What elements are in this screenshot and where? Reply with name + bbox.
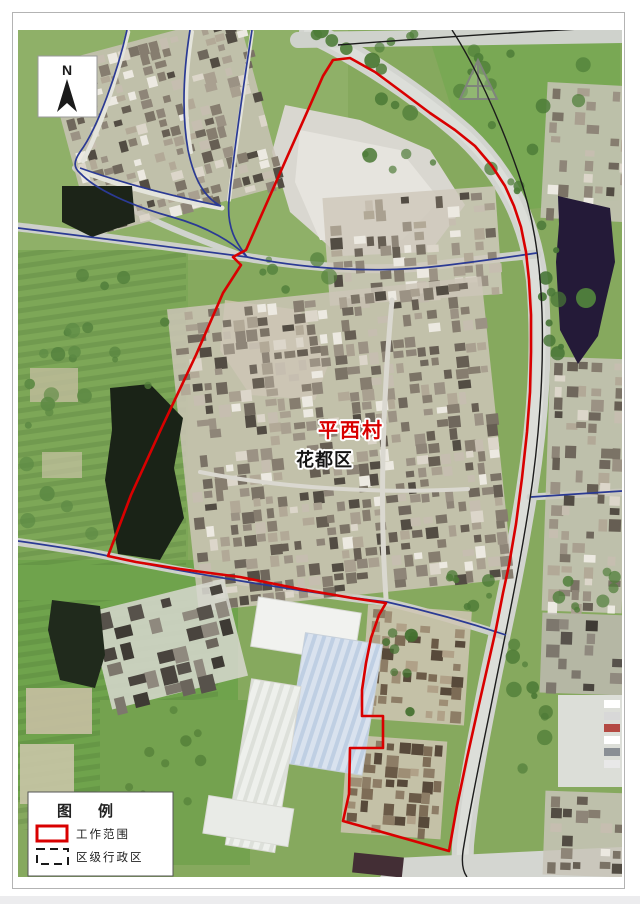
building-roof bbox=[577, 797, 588, 805]
building-roof bbox=[583, 603, 593, 611]
building-roof bbox=[559, 619, 569, 629]
building-roof bbox=[420, 626, 430, 633]
building-roof bbox=[440, 454, 451, 465]
tree-canopy bbox=[24, 379, 35, 390]
building-roof bbox=[302, 396, 314, 408]
building-roof bbox=[547, 862, 556, 874]
building-roof bbox=[458, 501, 466, 511]
building-roof bbox=[310, 346, 321, 354]
building-roof bbox=[547, 565, 560, 575]
building-roof bbox=[354, 248, 363, 257]
building-roof bbox=[460, 306, 469, 314]
building-roof bbox=[206, 526, 215, 537]
building-roof bbox=[482, 487, 494, 496]
building-roof bbox=[395, 635, 406, 646]
building-roof bbox=[393, 568, 407, 581]
building-roof bbox=[265, 399, 277, 407]
building-roof bbox=[268, 412, 279, 424]
building-roof bbox=[297, 578, 305, 589]
tree-canopy bbox=[39, 349, 49, 359]
building-roof bbox=[380, 684, 388, 695]
building-roof bbox=[612, 659, 622, 668]
building-roof bbox=[362, 510, 371, 522]
tree-canopy bbox=[180, 735, 191, 746]
building-roof bbox=[305, 310, 319, 322]
building-roof bbox=[294, 313, 306, 323]
building-roof bbox=[301, 384, 311, 392]
building-roof bbox=[353, 548, 362, 561]
building-roof bbox=[333, 332, 343, 345]
building-roof bbox=[380, 246, 391, 256]
building-roof bbox=[491, 287, 499, 295]
building-roof bbox=[489, 449, 499, 458]
building-roof bbox=[351, 294, 361, 304]
building-roof bbox=[447, 404, 460, 414]
building-roof bbox=[421, 493, 430, 502]
building-roof bbox=[375, 199, 383, 212]
building-roof bbox=[612, 864, 622, 874]
building-roof bbox=[448, 525, 456, 537]
building-roof bbox=[495, 497, 503, 506]
building-roof bbox=[330, 226, 342, 237]
building-roof bbox=[229, 391, 242, 402]
building-roof bbox=[370, 461, 381, 470]
building-roof bbox=[362, 777, 371, 790]
building-roof bbox=[344, 330, 356, 340]
building-roof bbox=[410, 494, 421, 503]
building-roof bbox=[231, 512, 241, 521]
building-roof bbox=[583, 591, 591, 601]
building-roof bbox=[369, 473, 379, 486]
building-roof bbox=[463, 320, 474, 331]
building-roof bbox=[437, 711, 445, 722]
tree-canopy bbox=[546, 319, 553, 326]
building-roof bbox=[386, 779, 395, 787]
building-roof bbox=[387, 743, 395, 750]
building-roof bbox=[437, 539, 447, 548]
building-roof bbox=[395, 816, 406, 825]
building-roof bbox=[476, 558, 486, 570]
building-roof bbox=[439, 699, 448, 706]
building-roof bbox=[578, 386, 586, 397]
building-roof bbox=[456, 356, 470, 369]
building-roof bbox=[382, 815, 395, 825]
building-roof bbox=[268, 532, 278, 542]
building-roof bbox=[448, 283, 460, 292]
building-roof bbox=[414, 313, 422, 320]
building-roof bbox=[262, 363, 274, 375]
building-roof bbox=[427, 310, 438, 319]
tree-canopy bbox=[388, 628, 398, 638]
building-roof bbox=[549, 122, 557, 133]
building-roof bbox=[320, 345, 328, 356]
tree-canopy bbox=[117, 271, 130, 284]
building-roof bbox=[555, 387, 562, 397]
building-roof bbox=[571, 670, 580, 679]
building-roof bbox=[587, 436, 595, 445]
tree-canopy bbox=[402, 105, 418, 121]
building-roof bbox=[561, 566, 572, 573]
page-bottom-strip bbox=[0, 896, 640, 904]
building-roof bbox=[386, 755, 399, 768]
building-roof bbox=[388, 411, 398, 423]
building-roof bbox=[550, 482, 560, 494]
building-roof bbox=[365, 547, 377, 556]
north-arrow: N bbox=[38, 56, 97, 117]
building-roof bbox=[376, 210, 387, 221]
tree-canopy bbox=[325, 34, 338, 47]
building-roof bbox=[316, 538, 325, 546]
tree-canopy bbox=[391, 101, 400, 110]
tree-canopy bbox=[100, 281, 109, 290]
building-roof bbox=[341, 320, 350, 332]
building-roof bbox=[551, 136, 561, 143]
tree-canopy bbox=[482, 574, 495, 587]
building-roof bbox=[321, 357, 331, 366]
building-roof bbox=[565, 446, 576, 459]
building-roof bbox=[205, 503, 217, 510]
building-roof bbox=[490, 473, 502, 481]
building-roof bbox=[411, 743, 424, 755]
building-roof bbox=[347, 813, 358, 822]
tree-canopy bbox=[82, 322, 93, 333]
building-roof bbox=[601, 448, 614, 458]
building-roof bbox=[394, 270, 405, 282]
building-roof bbox=[607, 605, 615, 613]
building-roof bbox=[355, 261, 365, 274]
building-roof bbox=[368, 329, 378, 337]
village-name-label: 平西村 bbox=[318, 419, 384, 442]
building-roof bbox=[427, 685, 438, 693]
building-roof bbox=[464, 561, 473, 571]
building-roof bbox=[431, 650, 444, 661]
building-roof bbox=[391, 696, 403, 703]
building-roof bbox=[359, 355, 368, 365]
building-roof bbox=[586, 125, 599, 134]
tree-canopy bbox=[464, 603, 471, 610]
building-roof bbox=[309, 563, 321, 576]
building-roof bbox=[274, 352, 282, 359]
building-roof bbox=[404, 554, 414, 567]
building-roof bbox=[233, 537, 242, 547]
building-roof bbox=[567, 362, 578, 372]
building-roof bbox=[448, 415, 461, 428]
building-roof bbox=[610, 508, 620, 515]
building-roof bbox=[562, 506, 570, 515]
building-roof bbox=[459, 392, 467, 405]
building-roof bbox=[240, 389, 252, 402]
building-roof bbox=[203, 479, 213, 489]
building-roof bbox=[391, 555, 401, 566]
building-roof bbox=[289, 398, 301, 410]
building-roof bbox=[554, 363, 563, 376]
building-roof bbox=[271, 458, 284, 471]
tree-canopy bbox=[321, 269, 337, 285]
building-roof bbox=[270, 436, 280, 446]
building-roof bbox=[429, 268, 438, 281]
building-roof bbox=[418, 468, 427, 478]
building-roof bbox=[293, 432, 306, 441]
building-roof bbox=[204, 490, 213, 498]
satellite-map-image: 平西村 花都区 N 图例 工作范围 区级行政区 bbox=[18, 30, 622, 877]
building-roof bbox=[451, 677, 463, 688]
tree-canopy bbox=[563, 576, 574, 587]
building-roof bbox=[550, 823, 562, 832]
building-roof bbox=[194, 517, 205, 530]
building-roof bbox=[435, 514, 447, 524]
building-roof bbox=[322, 576, 334, 587]
building-roof bbox=[374, 753, 382, 765]
building-roof bbox=[285, 591, 294, 598]
building-roof bbox=[233, 320, 245, 333]
building-roof bbox=[280, 531, 290, 541]
building-roof bbox=[279, 506, 288, 517]
building-roof bbox=[470, 510, 483, 523]
building-roof bbox=[426, 431, 435, 441]
building-roof bbox=[267, 508, 275, 518]
building-roof bbox=[252, 378, 265, 389]
building-roof bbox=[589, 412, 601, 421]
building-roof bbox=[431, 466, 442, 475]
building-roof bbox=[260, 569, 270, 581]
tree-canopy bbox=[109, 347, 120, 358]
tree-canopy bbox=[375, 92, 388, 105]
building-roof bbox=[396, 623, 407, 631]
building-roof bbox=[555, 411, 563, 418]
building-roof bbox=[320, 334, 328, 344]
building-roof bbox=[437, 419, 449, 427]
tree-canopy bbox=[390, 668, 398, 676]
building-roof bbox=[416, 443, 428, 454]
building-roof bbox=[215, 368, 223, 375]
building-roof bbox=[414, 552, 423, 559]
building-roof bbox=[312, 382, 324, 395]
building-roof bbox=[245, 415, 257, 428]
building-roof bbox=[339, 524, 350, 534]
building-roof bbox=[406, 349, 417, 357]
building-roof bbox=[358, 463, 369, 476]
building-roof bbox=[573, 862, 581, 869]
building-roof bbox=[422, 757, 431, 767]
building-roof bbox=[392, 247, 400, 259]
building-roof bbox=[409, 372, 422, 382]
building-roof bbox=[614, 364, 622, 371]
building-roof bbox=[412, 530, 423, 538]
building-roof bbox=[423, 288, 434, 301]
building-roof bbox=[246, 329, 258, 342]
building-roof bbox=[476, 264, 484, 277]
building-roof bbox=[348, 801, 356, 809]
building-roof bbox=[400, 530, 410, 540]
tree-canopy bbox=[144, 382, 151, 389]
building-roof bbox=[488, 556, 501, 567]
building-roof bbox=[615, 377, 622, 386]
building-roof bbox=[395, 579, 407, 588]
building-roof bbox=[426, 711, 433, 718]
building-roof bbox=[407, 816, 416, 825]
building-roof bbox=[451, 687, 462, 700]
building-roof bbox=[369, 352, 379, 365]
building-roof bbox=[496, 520, 505, 528]
legend-title: 图例 bbox=[57, 802, 139, 820]
building-roof bbox=[362, 389, 375, 402]
building-roof bbox=[223, 343, 235, 355]
building-roof bbox=[600, 862, 611, 869]
building-roof bbox=[309, 576, 321, 586]
building-roof bbox=[417, 268, 430, 278]
building-roof bbox=[475, 242, 484, 251]
building-roof bbox=[262, 352, 271, 363]
building-roof bbox=[253, 509, 262, 521]
building-roof bbox=[575, 112, 586, 125]
building-roof bbox=[402, 222, 412, 232]
building-roof bbox=[327, 515, 335, 524]
tree-canopy bbox=[401, 149, 411, 159]
tree-canopy bbox=[526, 681, 539, 694]
building-roof bbox=[192, 383, 202, 391]
building-roof bbox=[612, 459, 622, 472]
building-roof bbox=[253, 498, 261, 507]
building-roof bbox=[564, 495, 575, 506]
building-roof bbox=[584, 174, 593, 183]
building-roof bbox=[313, 491, 325, 504]
building-roof bbox=[342, 550, 350, 559]
tree-canopy bbox=[537, 730, 552, 745]
building-roof bbox=[552, 112, 564, 121]
building-roof bbox=[295, 325, 304, 335]
tree-canopy bbox=[281, 285, 290, 294]
building-roof bbox=[186, 324, 199, 332]
building-roof bbox=[342, 307, 354, 316]
building-roof bbox=[591, 363, 602, 373]
building-roof bbox=[401, 422, 410, 432]
building-cluster bbox=[167, 276, 515, 612]
building-roof bbox=[612, 448, 620, 459]
building-roof bbox=[235, 451, 248, 461]
building-roof bbox=[226, 464, 234, 471]
tree-canopy bbox=[506, 50, 514, 58]
tree-canopy bbox=[390, 644, 400, 654]
building-roof bbox=[467, 475, 475, 483]
building-roof bbox=[176, 348, 189, 356]
building-roof bbox=[416, 672, 427, 680]
building-roof bbox=[444, 369, 452, 379]
building-roof bbox=[354, 236, 366, 244]
tree-canopy bbox=[506, 650, 520, 664]
building-roof bbox=[462, 549, 474, 557]
building-roof bbox=[414, 232, 424, 241]
building-roof bbox=[401, 543, 411, 550]
building-roof bbox=[284, 351, 295, 359]
building-roof bbox=[351, 524, 359, 531]
building-roof bbox=[452, 320, 461, 332]
tree-canopy bbox=[65, 323, 80, 338]
building-roof bbox=[614, 412, 622, 424]
building-roof bbox=[423, 517, 433, 524]
building-roof bbox=[404, 258, 416, 267]
building-roof bbox=[576, 811, 589, 824]
building-roof bbox=[547, 185, 559, 195]
tree-canopy bbox=[430, 159, 436, 165]
building-roof bbox=[421, 792, 430, 804]
building-roof bbox=[244, 306, 253, 316]
building-roof bbox=[255, 522, 266, 534]
tree-canopy bbox=[402, 669, 411, 678]
building-roof bbox=[289, 374, 300, 382]
building-roof bbox=[485, 228, 496, 238]
building-roof bbox=[267, 521, 278, 532]
building-roof bbox=[466, 451, 474, 458]
building-roof bbox=[420, 360, 429, 367]
tree-canopy bbox=[68, 346, 81, 359]
building-roof bbox=[419, 805, 429, 817]
building-roof bbox=[284, 555, 293, 564]
building-roof bbox=[244, 535, 257, 547]
building-roof bbox=[410, 517, 421, 526]
building-roof bbox=[446, 501, 454, 509]
building-cluster bbox=[543, 791, 622, 877]
tree-canopy bbox=[161, 759, 169, 767]
building-roof bbox=[599, 460, 610, 469]
building-roof bbox=[439, 562, 448, 569]
building-roof bbox=[239, 596, 249, 606]
building-roof bbox=[304, 300, 316, 308]
building-roof bbox=[339, 297, 348, 309]
building-roof bbox=[270, 555, 280, 567]
tree-canopy bbox=[539, 705, 553, 719]
building-roof bbox=[369, 450, 378, 457]
building-roof bbox=[434, 382, 446, 395]
building-roof bbox=[586, 532, 594, 539]
building-roof bbox=[237, 463, 250, 474]
building-roof bbox=[398, 505, 411, 515]
building-roof bbox=[469, 500, 481, 512]
building-roof bbox=[560, 862, 571, 870]
tree-canopy bbox=[468, 44, 481, 57]
building-roof bbox=[443, 466, 453, 476]
building-roof bbox=[306, 421, 317, 431]
building-roof bbox=[231, 525, 239, 535]
building-roof bbox=[311, 370, 323, 378]
building-roof bbox=[613, 851, 621, 859]
building-roof bbox=[306, 324, 315, 335]
building-roof bbox=[360, 377, 373, 390]
building-roof bbox=[474, 228, 485, 240]
building-roof bbox=[423, 768, 435, 778]
building-roof bbox=[433, 781, 441, 793]
building-roof bbox=[344, 261, 353, 268]
building-roof bbox=[471, 403, 479, 412]
building-roof bbox=[428, 551, 441, 563]
building-roof bbox=[333, 344, 344, 357]
building-roof bbox=[293, 300, 305, 312]
building-roof bbox=[298, 360, 306, 371]
tree-canopy bbox=[170, 706, 178, 714]
building-roof bbox=[371, 366, 381, 376]
building-roof bbox=[610, 673, 622, 684]
building-roof bbox=[586, 102, 596, 111]
building-roof bbox=[487, 424, 499, 437]
building-roof bbox=[242, 512, 255, 525]
building-roof bbox=[247, 316, 258, 328]
building-roof bbox=[257, 426, 268, 435]
tree-canopy bbox=[375, 42, 385, 52]
tree-canopy bbox=[20, 513, 35, 528]
tree-canopy bbox=[553, 591, 566, 604]
building-roof bbox=[428, 456, 441, 467]
tree-canopy bbox=[507, 178, 514, 185]
building-roof bbox=[560, 554, 571, 562]
